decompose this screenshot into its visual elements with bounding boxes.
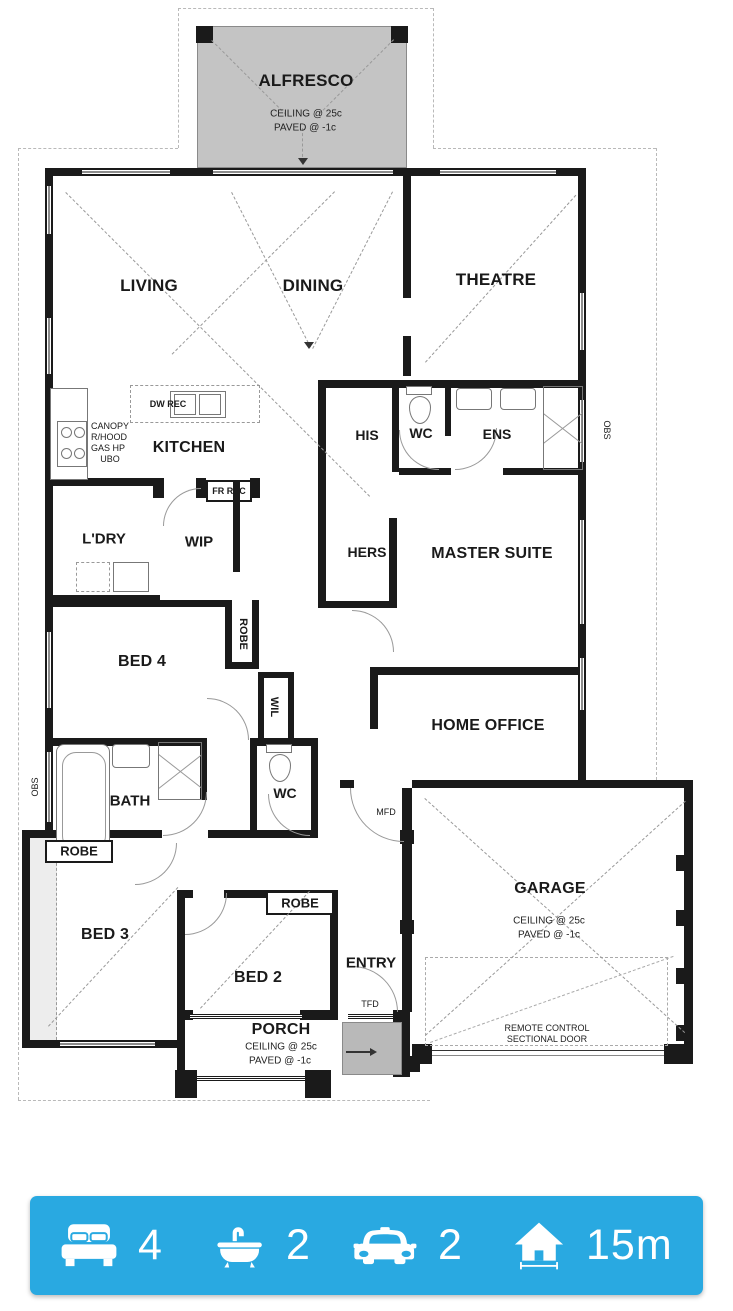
wall <box>445 386 451 436</box>
laundry-trough <box>113 562 149 592</box>
garage-paved-note: PAVED @ -1c <box>518 930 580 941</box>
window <box>46 318 52 374</box>
wall <box>340 780 354 788</box>
porch-ceiling-note: CEILING @ 25c <box>245 1042 317 1053</box>
wall <box>664 1044 693 1064</box>
door-swing <box>207 698 249 740</box>
window <box>213 169 393 175</box>
bed-icon <box>60 1224 118 1268</box>
wall <box>392 386 399 472</box>
ensuite-basin <box>456 388 492 410</box>
house-width-icon <box>512 1221 566 1271</box>
robe-label-bed2: ROBE <box>281 896 319 911</box>
wall <box>177 890 185 1076</box>
window <box>60 1041 155 1047</box>
ceiling-line <box>172 191 335 354</box>
entry-arrow <box>370 1048 377 1056</box>
summary-item-bedrooms: 4 <box>60 1196 163 1295</box>
room-label-theatre: THEATRE <box>456 270 536 290</box>
window <box>46 752 52 822</box>
ceiling-arrow <box>304 342 314 349</box>
porch-edge <box>197 1076 305 1081</box>
wall <box>225 662 259 669</box>
room-label-ldry: L'DRY <box>82 531 126 548</box>
room-label-bed2: BED 2 <box>234 969 282 987</box>
fridge-recess-label: FR REC <box>212 486 246 496</box>
wall <box>412 780 693 788</box>
ceiling-line <box>231 192 311 347</box>
door-swing <box>185 893 227 935</box>
toilet-bowl <box>409 396 431 424</box>
wall <box>153 478 164 498</box>
room-label-living: LIVING <box>120 276 178 296</box>
wall <box>250 738 257 838</box>
bathrooms-count: 2 <box>286 1221 311 1270</box>
toilet-cistern <box>266 744 292 753</box>
wall <box>258 672 264 742</box>
entry-arrow-line <box>346 1051 370 1053</box>
room-label-kitchen: KITCHEN <box>153 439 226 457</box>
wall <box>311 738 318 838</box>
obs-window-label-right: OBS <box>602 420 612 439</box>
bedrooms-count: 4 <box>138 1221 163 1270</box>
room-label-entry: ENTRY <box>346 955 396 972</box>
eave-line <box>656 148 657 780</box>
door-swing <box>135 843 177 885</box>
summary-item-garages: 2 <box>352 1196 463 1295</box>
washer-space <box>76 562 110 592</box>
wall <box>45 600 228 607</box>
eave-line <box>433 148 656 149</box>
wall <box>22 830 30 1048</box>
garage-pier <box>676 968 684 984</box>
wall <box>252 600 259 668</box>
wall <box>389 518 397 608</box>
garage-door-note-1: REMOTE CONTROL <box>504 1023 589 1033</box>
garage-door-note-2: SECTIONAL DOOR <box>507 1034 587 1044</box>
mfd-door-label: MFD <box>376 807 396 817</box>
room-label-bed4: BED 4 <box>118 653 166 671</box>
property-summary-bar: 4 2 <box>30 1196 703 1295</box>
appliance-notes: CANOPY R/HOOD GAS HP UBO <box>91 421 129 465</box>
wall <box>250 478 260 498</box>
kitchen-sink-bowl <box>199 394 221 415</box>
wall <box>300 1010 338 1020</box>
floor-plan-page: ALFRESCO CEILING @ 25c PAVED @ -1c <box>0 0 733 1311</box>
room-label-bed3: BED 3 <box>81 926 129 944</box>
wil-label: WIL <box>268 697 280 717</box>
eave-line <box>433 8 434 148</box>
burner <box>61 427 72 438</box>
wall <box>684 788 693 1064</box>
burner <box>61 448 72 459</box>
window <box>579 658 585 710</box>
wall <box>318 380 326 608</box>
room-label-his: HIS <box>355 427 378 443</box>
step-edge <box>400 1056 420 1072</box>
wall <box>400 920 414 934</box>
wall <box>288 672 294 742</box>
bath-basin <box>112 744 150 768</box>
room-label-bath: BATH <box>110 793 151 810</box>
alfresco-ceiling-note: CEILING @ 25c <box>270 109 342 120</box>
bath-icon <box>216 1222 266 1270</box>
rhood-note: R/HOOD <box>91 432 129 443</box>
room-label-ens: ENS <box>483 426 512 442</box>
porch-pier <box>305 1070 331 1098</box>
ensuite-basin <box>500 388 536 410</box>
window <box>82 169 170 175</box>
garages-count: 2 <box>438 1221 463 1270</box>
robe-label-bed4: ROBE <box>237 618 249 650</box>
window <box>579 293 585 350</box>
ensuite-shower <box>543 386 583 470</box>
toilet-bowl <box>269 754 291 782</box>
room-label-alfresco: ALFRESCO <box>258 71 353 91</box>
burner <box>74 448 85 459</box>
wall <box>403 176 411 298</box>
garage-pier <box>676 855 684 871</box>
ubo-note: UBO <box>91 454 129 465</box>
direction-arrow <box>298 158 308 165</box>
entry-door-threshold <box>348 1014 393 1019</box>
door-swing <box>163 488 201 526</box>
porch-paved-note: PAVED @ -1c <box>249 1056 311 1067</box>
robe-label-left: ROBE <box>60 844 98 859</box>
window <box>440 169 556 175</box>
room-label-home-office: HOME OFFICE <box>431 717 544 735</box>
obs-window-label-left: OBS <box>30 777 40 796</box>
window <box>579 520 585 624</box>
toilet-cistern <box>406 386 432 395</box>
dishwasher-recess-label: DW REC <box>150 399 187 409</box>
bathtub-inner <box>62 752 106 850</box>
robe-shelf-strip <box>30 838 57 1040</box>
eave-line <box>18 148 19 1100</box>
ceiling-line <box>48 887 178 1027</box>
eave-line <box>178 8 433 9</box>
eave-line <box>18 148 178 149</box>
wall <box>403 336 411 376</box>
burner <box>74 427 85 438</box>
room-label-wc-top: WC <box>409 425 432 441</box>
ceiling-line <box>312 192 393 349</box>
porch-pier <box>175 1070 197 1098</box>
wall <box>318 601 396 608</box>
window <box>46 632 52 708</box>
wall <box>225 600 232 668</box>
room-label-dining: DINING <box>283 276 344 296</box>
door-swing <box>163 792 207 836</box>
room-label-hers: HERS <box>348 544 387 560</box>
room-label-wc-bottom: WC <box>273 785 296 801</box>
tfd-door-label: TFD <box>361 999 379 1009</box>
garage-ceiling-note: CEILING @ 25c <box>513 916 585 927</box>
summary-item-frontage: 15m <box>512 1196 673 1295</box>
frontage-value: 15m <box>586 1221 673 1270</box>
alfresco-paved-note: PAVED @ -1c <box>274 123 336 134</box>
room-label-wip: WIP <box>185 534 213 551</box>
window <box>46 186 52 234</box>
wall <box>399 468 451 475</box>
room-label-porch: PORCH <box>252 1021 311 1039</box>
room-label-master-suite: MASTER SUITE <box>431 545 553 563</box>
gashp-note: GAS HP <box>91 443 129 454</box>
garage-pier <box>676 910 684 926</box>
window <box>190 1014 302 1019</box>
eave-line <box>178 8 179 148</box>
canopy-note: CANOPY <box>91 421 129 432</box>
garage-door-line <box>432 1050 664 1056</box>
room-label-garage: GARAGE <box>514 880 585 898</box>
summary-item-bathrooms: 2 <box>216 1196 311 1295</box>
door-swing <box>352 610 394 652</box>
wall <box>370 667 578 675</box>
eave-line <box>18 1100 430 1101</box>
wall <box>370 667 378 729</box>
car-icon <box>352 1223 418 1269</box>
